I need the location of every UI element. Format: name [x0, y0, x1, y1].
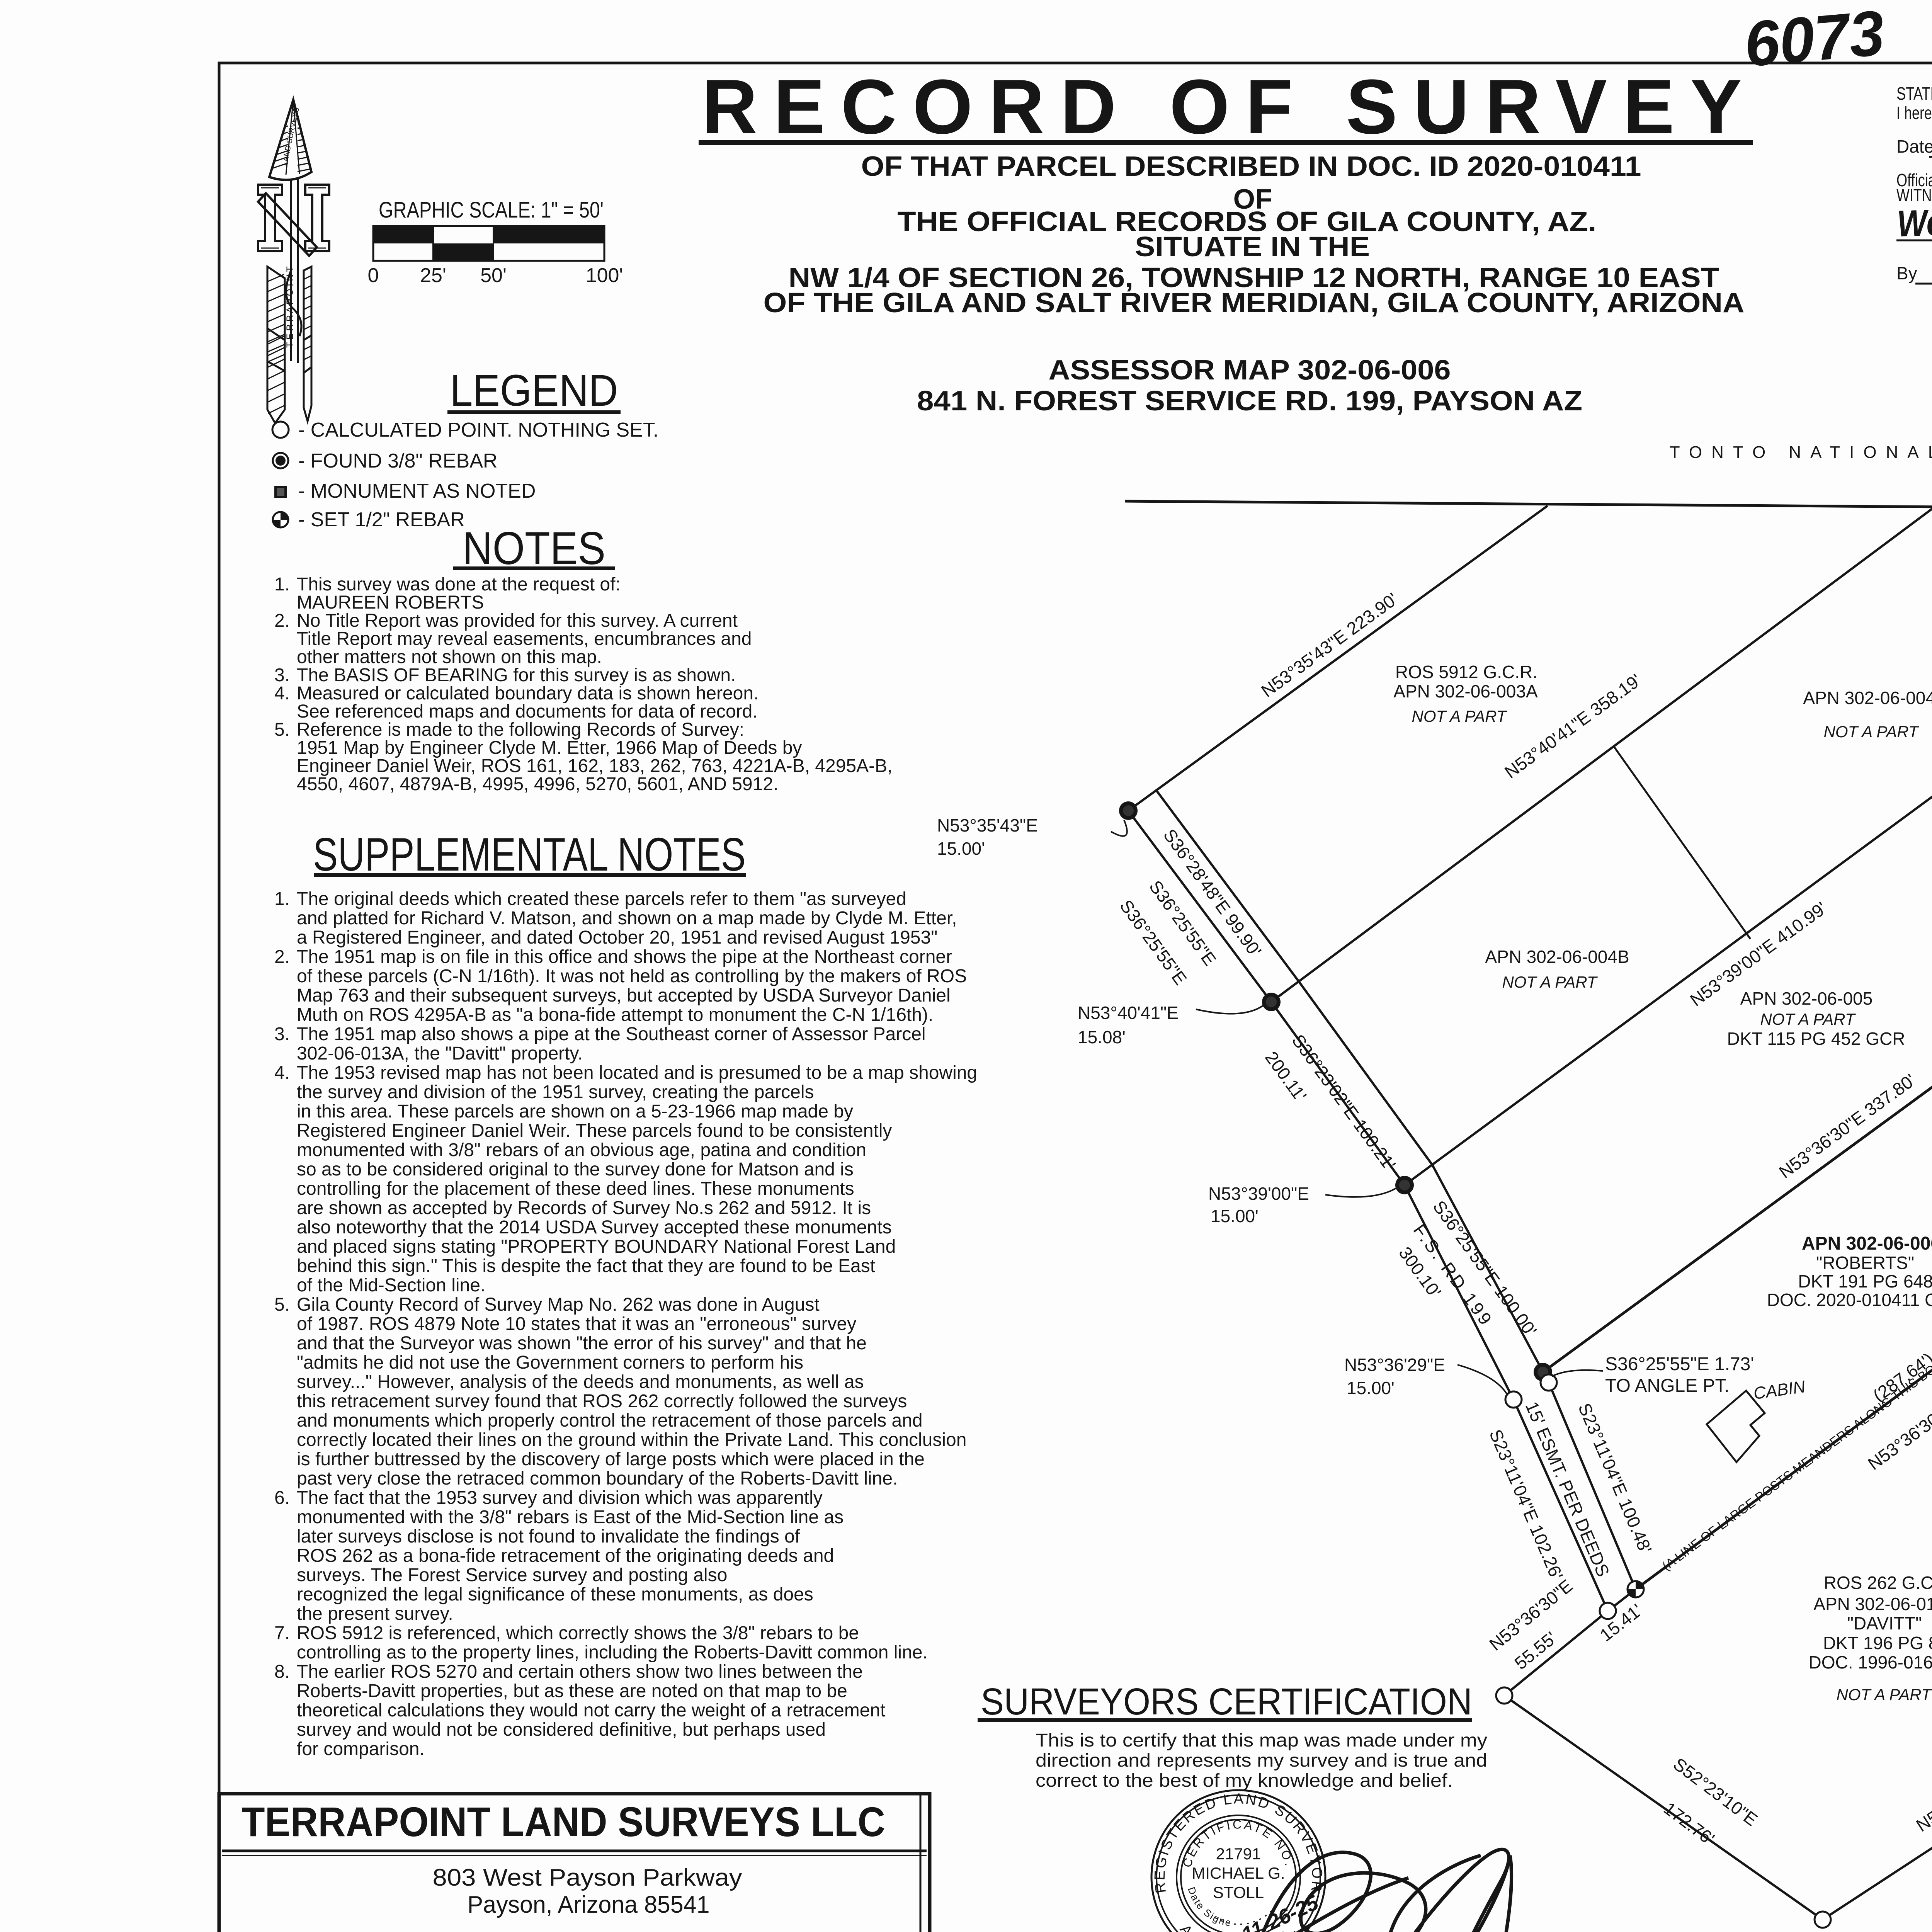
svg-text:"admits he did not use the Gov: "admits he did not use the Government co…	[297, 1352, 803, 1373]
svg-text:this retracement survey found: this retracement survey found that ROS 2…	[297, 1391, 907, 1412]
svg-text:NOT A PART: NOT A PART	[1836, 1685, 1932, 1704]
svg-text:DKT 196 PG 82: DKT 196 PG 82	[1823, 1633, 1932, 1653]
svg-text:302-06-013A, the "Davitt" prop: 302-06-013A, the "Davitt" property.	[297, 1043, 583, 1064]
svg-text:0: 0	[368, 264, 379, 287]
svg-text:- SET 1/2" REBAR: - SET 1/2" REBAR	[298, 509, 465, 531]
svg-text:Date: Date	[1896, 136, 1932, 156]
svg-text:The 1951 map is on file in thi: The 1951 map is on file in this office a…	[297, 947, 952, 967]
svg-text:"DAVITT": "DAVITT"	[1847, 1613, 1922, 1633]
svg-text:See referenced maps and docume: See referenced maps and documents for da…	[297, 701, 758, 722]
svg-text:DOC. 1996-016672: DOC. 1996-016672	[1809, 1652, 1932, 1672]
svg-text:of these parcels (C-N 1/16th).: of these parcels (C-N 1/16th). It was no…	[297, 966, 967, 986]
svg-text:21791: 21791	[1216, 1845, 1261, 1863]
svg-text:NOT A PART: NOT A PART	[1502, 973, 1598, 991]
svg-text:Registered Engineer Daniel Wei: Registered Engineer Daniel Weir. These p…	[297, 1121, 892, 1141]
svg-text:N53°39'00"E: N53°39'00"E	[1208, 1184, 1309, 1204]
svg-text:SITUATE IN THE: SITUATE IN THE	[1135, 231, 1370, 262]
svg-text:3.: 3.	[274, 1024, 290, 1044]
svg-text:OF THE GILA AND SALT RIVER MER: OF THE GILA AND SALT RIVER MERIDIAN, GIL…	[764, 287, 1745, 318]
svg-text:Map 763 and their subsequent s: Map 763 and their subsequent surveys, bu…	[297, 985, 951, 1006]
svg-text:TONTO NATIONAL FOREST: TONTO NATIONAL FOREST	[1670, 443, 1932, 462]
svg-text:correct to the best of my know: correct to the best of my knowledge and …	[1036, 1770, 1453, 1791]
svg-text:for comparison.: for comparison.	[297, 1739, 425, 1759]
svg-text:NOT A PART: NOT A PART	[1823, 723, 1919, 741]
svg-text:NOTES: NOTES	[463, 522, 605, 574]
svg-text:are shown as accepted by Recor: are shown as accepted by Records of Surv…	[297, 1198, 871, 1218]
svg-text:the present survey.: the present survey.	[297, 1604, 453, 1624]
svg-text:2.: 2.	[274, 611, 290, 631]
svg-text:so as to be considered origina: so as to be considered original to the s…	[297, 1159, 854, 1180]
svg-text:MICHAEL G.: MICHAEL G.	[1192, 1864, 1285, 1882]
svg-text:S36°25'55"E 1.73': S36°25'55"E 1.73'	[1605, 1354, 1754, 1374]
svg-text:other matters not shown on thi: other matters not shown on this map.	[297, 647, 602, 667]
svg-text:2.: 2.	[274, 947, 290, 967]
svg-text:50': 50'	[480, 264, 507, 287]
svg-text:Payson, Arizona 85541: Payson, Arizona 85541	[468, 1891, 710, 1918]
svg-text:in this area. These parcels ar: in this area. These parcels are shown on…	[297, 1101, 853, 1122]
svg-text:1951 Map by Engineer Clyde M.: 1951 Map by Engineer Clyde M. Etter, 196…	[297, 738, 802, 758]
svg-text:TO ANGLE PT.: TO ANGLE PT.	[1605, 1376, 1730, 1396]
svg-text:is further buttressed by the d: is further buttressed by the discovery o…	[297, 1449, 925, 1469]
svg-text:ROS 5912 G.C.R.: ROS 5912 G.C.R.	[1395, 662, 1537, 682]
svg-text:surveys. The Forest Service su: surveys. The Forest Service survey and p…	[297, 1565, 727, 1585]
svg-text:8.: 8.	[274, 1662, 290, 1682]
svg-text:MAUREEN ROBERTS: MAUREEN ROBERTS	[297, 592, 484, 613]
svg-text:6.: 6.	[274, 1488, 290, 1508]
svg-text:of 1987. ROS 4879 Note 10 stat: of 1987. ROS 4879 Note 10 states that it…	[297, 1314, 856, 1334]
svg-text:recognized the legal significa: recognized the legal significance of the…	[297, 1584, 813, 1605]
svg-text:The fact that the 1953 survey: The fact that the 1953 survey and divisi…	[297, 1488, 823, 1508]
svg-text:15.00': 15.00'	[1211, 1206, 1259, 1226]
svg-text:past very close the retraced c: past very close the retraced common boun…	[297, 1468, 898, 1489]
svg-text:NOT A PART: NOT A PART	[1760, 1010, 1856, 1028]
svg-text:This survey was done at the re: This survey was done at the request of:	[297, 574, 621, 595]
svg-text:Engineer Daniel Weir, ROS 161,: Engineer Daniel Weir, ROS 161, 162, 183,…	[297, 756, 892, 776]
svg-text:LEGEND: LEGEND	[450, 366, 618, 415]
svg-text:4.: 4.	[274, 683, 290, 704]
svg-text:No Title Report was provided f: No Title Report was provided for this su…	[297, 611, 738, 631]
svg-text:behind this sign." This is des: behind this sign." This is despite the f…	[297, 1256, 875, 1276]
svg-text:The 1951 map also shows a pipe: The 1951 map also shows a pipe at the So…	[297, 1024, 926, 1044]
svg-text:3.: 3.	[274, 665, 290, 685]
svg-text:controlling for the placement: controlling for the placement of these d…	[297, 1179, 854, 1199]
svg-text:DKT 191 PG 648: DKT 191 PG 648	[1798, 1271, 1932, 1291]
svg-text:APN 302-06-005: APN 302-06-005	[1740, 988, 1873, 1009]
svg-text:NOT A PART: NOT A PART	[1412, 707, 1507, 725]
svg-text:1.: 1.	[274, 574, 290, 595]
svg-text:ASSESSOR MAP 302-06-006: ASSESSOR MAP 302-06-006	[1049, 355, 1451, 386]
svg-text:survey..." However, analysis o: survey..." However, analysis of the deed…	[297, 1372, 864, 1392]
svg-text:APN 302-06-006: APN 302-06-006	[1802, 1233, 1932, 1254]
svg-text:Reference is made to the follo: Reference is made to the following Recor…	[297, 719, 744, 740]
svg-text:This is to certify that this m: This is to certify that this map was mad…	[1036, 1730, 1487, 1751]
svg-text:monumented with the 3/8" rebar: monumented with the 3/8" rebars is East …	[297, 1507, 844, 1527]
svg-text:correctly located their lines: correctly located their lines on the gro…	[297, 1430, 966, 1450]
svg-text:The BASIS OF BEARING for this: The BASIS OF BEARING for this survey is …	[297, 665, 736, 685]
svg-text:N53°40'41"E: N53°40'41"E	[1078, 1003, 1179, 1023]
svg-text:803 West Payson Parkway: 803 West Payson Parkway	[433, 1864, 742, 1891]
svg-text:SUPPLEMENTAL NOTES: SUPPLEMENTAL NOTES	[313, 828, 746, 881]
svg-text:- MONUMENT AS NOTED: - MONUMENT AS NOTED	[298, 480, 536, 502]
svg-text:841 N. FOREST SERVICE RD. 199,: 841 N. FOREST SERVICE RD. 199, PAYSON AZ	[917, 386, 1582, 417]
svg-text:I hereby certify that the with: I hereby certify that the within instrum…	[1896, 103, 1932, 123]
svg-text:and placed signs stating "PROP: and placed signs stating "PROPERTY BOUND…	[297, 1236, 896, 1257]
svg-text:STATE OF ARIZONA, County of Gi: STATE OF ARIZONA, County of Gila, ss;	[1896, 83, 1932, 104]
svg-text:also noteworthy that the 2014: also noteworthy that the 2014 USDA Surve…	[297, 1217, 892, 1238]
svg-text:5.: 5.	[274, 1294, 290, 1315]
svg-text:- CALCULATED POINT. NOTHING SE: - CALCULATED POINT. NOTHING SET.	[298, 419, 658, 441]
svg-text:APN 302-06-004A: APN 302-06-004A	[1803, 688, 1932, 708]
svg-text:and monuments which properly c: and monuments which properly control the…	[297, 1410, 923, 1431]
svg-text:The 1953 revised map has not b: The 1953 revised map has not been locate…	[297, 1063, 977, 1083]
svg-text:controlling as to the property: controlling as to the property lines, in…	[297, 1642, 928, 1663]
svg-text:APN 302-06-003A: APN 302-06-003A	[1393, 681, 1538, 701]
svg-text:monumented with 3/8" rebars of: monumented with 3/8" rebars of an obviou…	[297, 1140, 866, 1160]
svg-text:Measured or calculated boundar: Measured or calculated boundary data is …	[297, 683, 759, 704]
svg-text:SURVEYORS CERTIFICATION: SURVEYORS CERTIFICATION	[981, 1680, 1472, 1723]
svg-text:4550, 4607, 4879A-B, 4995, 499: 4550, 4607, 4879A-B, 4995, 4996, 5270, 5…	[297, 774, 778, 794]
svg-text:Gila County Record of Survey M: Gila County Record of Survey Map No. 262…	[297, 1294, 820, 1315]
svg-text:ROS 262 as a bona-fide retrace: ROS 262 as a bona-fide retracement of th…	[297, 1546, 834, 1566]
svg-text:Muth on ROS 4295A-B as "a bona: Muth on ROS 4295A-B as "a bona-fide atte…	[297, 1005, 933, 1025]
svg-text:ROS 262 G.C.R.: ROS 262 G.C.R.	[1824, 1573, 1932, 1593]
svg-text:APN 302-06-004B: APN 302-06-004B	[1485, 947, 1629, 967]
svg-text:The earlier ROS 5270 and certa: The earlier ROS 5270 and certain others …	[297, 1662, 863, 1682]
svg-text:of the Mid-Section line.: of the Mid-Section line.	[297, 1275, 485, 1296]
svg-text:25': 25'	[420, 264, 446, 287]
svg-text:OF THAT PARCEL DESCRIBED IN DO: OF THAT PARCEL DESCRIBED IN DOC. ID 2020…	[861, 151, 1641, 182]
svg-text:N53°36'29"E: N53°36'29"E	[1344, 1355, 1445, 1375]
svg-text:4.: 4.	[274, 1063, 290, 1083]
svg-text:The original deeds which creat: The original deeds which created these p…	[297, 889, 906, 909]
svg-text:theoretical calculations they: theoretical calculations they would not …	[297, 1700, 885, 1721]
svg-text:N53°35'43"E: N53°35'43"E	[937, 815, 1038, 835]
svg-text:7.: 7.	[274, 1623, 290, 1643]
svg-text:DOC. 2020-010411 GCR: DOC. 2020-010411 GCR	[1767, 1290, 1932, 1310]
svg-text:and platted for Richard V. Mat: and platted for Richard V. Matson, and s…	[297, 908, 957, 929]
svg-text:the survey and division of the: the survey and division of the 1951 surv…	[297, 1082, 814, 1102]
svg-text:APN 302-06-013A: APN 302-06-013A	[1813, 1594, 1932, 1614]
svg-text:"ROBERTS": "ROBERTS"	[1816, 1253, 1914, 1273]
svg-text:later surveys disclose is not: later surveys disclose is not found to i…	[297, 1526, 800, 1547]
svg-text:survey and would not be consid: survey and would not be considered defin…	[297, 1719, 826, 1740]
svg-text:TERRAPOINT LAND SURVEYS LLC: TERRAPOINT LAND SURVEYS LLC	[241, 1798, 885, 1845]
svg-text:100': 100'	[586, 264, 623, 287]
svg-text:15.00': 15.00'	[937, 838, 985, 859]
svg-text:6073: 6073	[1742, 0, 1887, 80]
svg-text:direction and represents my su: direction and represents my survey and i…	[1036, 1750, 1487, 1771]
svg-text:RECORD OF SURVEY: RECORD OF SURVEY	[702, 64, 1742, 150]
svg-text:By: By	[1896, 263, 1917, 283]
svg-text:GRAPHIC SCALE: 1" = 50': GRAPHIC SCALE: 1" = 50'	[379, 197, 604, 223]
svg-text:- FOUND 3/8" REBAR: - FOUND 3/8" REBAR	[298, 450, 497, 472]
svg-text:DKT 115 PG 452 GCR: DKT 115 PG 452 GCR	[1727, 1029, 1905, 1049]
svg-text:ROS 5912 is referenced, which: ROS 5912 is referenced, which correctly …	[297, 1623, 859, 1643]
svg-text:a Registered Engineer, and dat: a Registered Engineer, and dated October…	[297, 927, 937, 948]
svg-text:and that the Surveyor was show: and that the Surveyor was shown "the err…	[297, 1333, 867, 1354]
svg-text:15.00': 15.00'	[1347, 1378, 1395, 1398]
svg-text:Title Report may reveal easeme: Title Report may reveal easements, encum…	[297, 629, 752, 649]
svg-text:STOLL: STOLL	[1213, 1883, 1264, 1901]
svg-text:5.: 5.	[274, 719, 290, 740]
svg-text:1.: 1.	[274, 889, 290, 909]
svg-text:Roberts-Davitt properties, but: Roberts-Davitt properties, but as these …	[297, 1681, 847, 1701]
svg-text:15.08': 15.08'	[1078, 1027, 1126, 1047]
svg-text:T E R R A P O I N T: T E R R A P O I N T	[285, 266, 295, 348]
